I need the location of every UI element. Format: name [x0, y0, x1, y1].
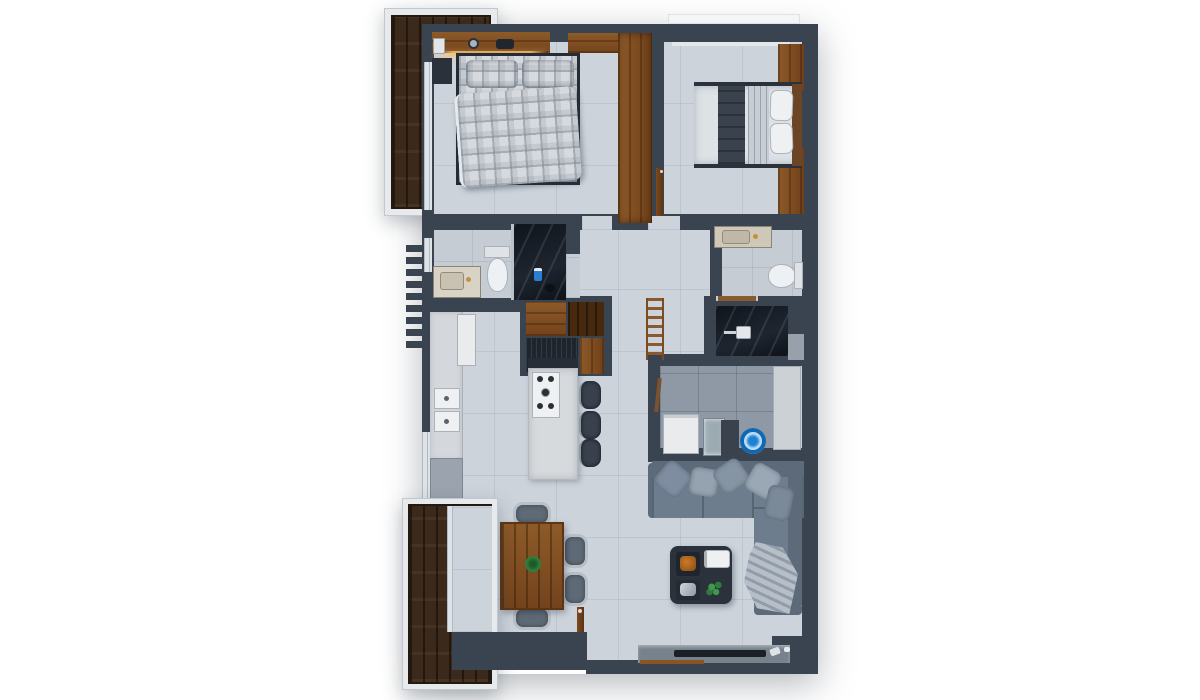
balcony-bottom-interior-floor	[452, 506, 492, 632]
bar-stool-2	[579, 411, 601, 439]
main-bath-shower	[514, 224, 566, 300]
towel-ladder	[646, 298, 664, 360]
master-duvet	[454, 86, 582, 188]
coffee-marble-dish	[680, 583, 696, 596]
coffee-dishes	[704, 550, 730, 568]
tv-object	[784, 647, 790, 652]
ensuite-step	[788, 334, 804, 360]
ensuite-faucet	[753, 234, 758, 239]
washer	[663, 414, 699, 454]
blue-basin	[740, 428, 766, 454]
doorway-bedroom2	[648, 216, 680, 230]
wardrobe-right-band	[618, 33, 652, 223]
floor-plan-canvas	[0, 0, 1200, 700]
window-master-balcony-door	[424, 62, 432, 210]
ensuite-towel-rail	[716, 296, 758, 301]
table-plant	[525, 556, 541, 572]
dining-chair-right-1	[562, 534, 588, 568]
bed2-fold	[748, 86, 769, 164]
nightstand-left	[432, 58, 452, 84]
burner-3	[541, 388, 550, 397]
doorway-main-bath	[566, 254, 580, 298]
facade-sawtooth-fins	[406, 245, 422, 353]
bedroom2-door-handle	[660, 170, 663, 173]
entry-door-handle	[578, 609, 582, 613]
burner-1	[537, 376, 543, 382]
coffee-plant	[704, 578, 726, 598]
tv-screen	[674, 650, 766, 657]
tv-wood-sill	[640, 660, 704, 664]
wall-bottom-left-overlap	[452, 632, 586, 670]
ensuite-toilet-bowl	[768, 264, 796, 288]
bed2-pillow-bottom	[769, 123, 793, 155]
shower-drain	[545, 284, 555, 292]
headboard-shelf	[432, 32, 550, 53]
burner-4	[537, 403, 543, 409]
cabinet-wood-b	[568, 302, 604, 336]
phone-on-shelf	[496, 39, 514, 49]
bed2-runner	[718, 86, 745, 164]
master-pillow-left	[466, 60, 518, 88]
oven-handle-2	[444, 419, 449, 424]
main-bath-toilet-bowl	[487, 258, 508, 292]
bed2-pillow-top	[769, 90, 793, 122]
bed2-headboard	[792, 84, 802, 166]
ensuite-sink	[722, 230, 750, 244]
bedroom2-door-leaf	[656, 168, 663, 216]
cabinet-wood-c	[580, 338, 604, 374]
bar-stool-1	[579, 381, 601, 409]
utility-door-panel	[773, 366, 801, 450]
kitchen-tall-unit	[457, 314, 476, 366]
wall-vent-unit	[433, 38, 445, 54]
bar-stool-3	[579, 439, 601, 467]
dining-chair-right-2	[562, 572, 588, 606]
oven-handle-1	[444, 396, 449, 401]
ensuite-toilet-tank	[794, 262, 803, 289]
coffee-food	[680, 556, 696, 571]
balcony-bottom-sliding-door	[447, 506, 453, 632]
alarm-clock	[468, 38, 479, 49]
window-bedroom2-sill	[668, 14, 800, 24]
cabinet-wood-a	[526, 302, 566, 336]
utility-dark-panel	[721, 420, 739, 458]
island-hood-band	[528, 358, 578, 368]
doorway-bedroom1	[582, 216, 612, 230]
window-main-bath	[424, 238, 432, 272]
shampoo-bottle	[534, 268, 542, 281]
main-bath-sink	[440, 272, 464, 290]
burner-5	[548, 403, 554, 409]
main-bath-toilet-tank	[484, 246, 510, 258]
main-bath-faucet	[466, 277, 471, 282]
ensuite-shower-head	[736, 326, 751, 339]
window-bedroom2-strip	[672, 42, 790, 46]
wall-right	[802, 24, 818, 674]
master-pillow-right	[522, 60, 574, 88]
burner-2	[548, 376, 554, 382]
